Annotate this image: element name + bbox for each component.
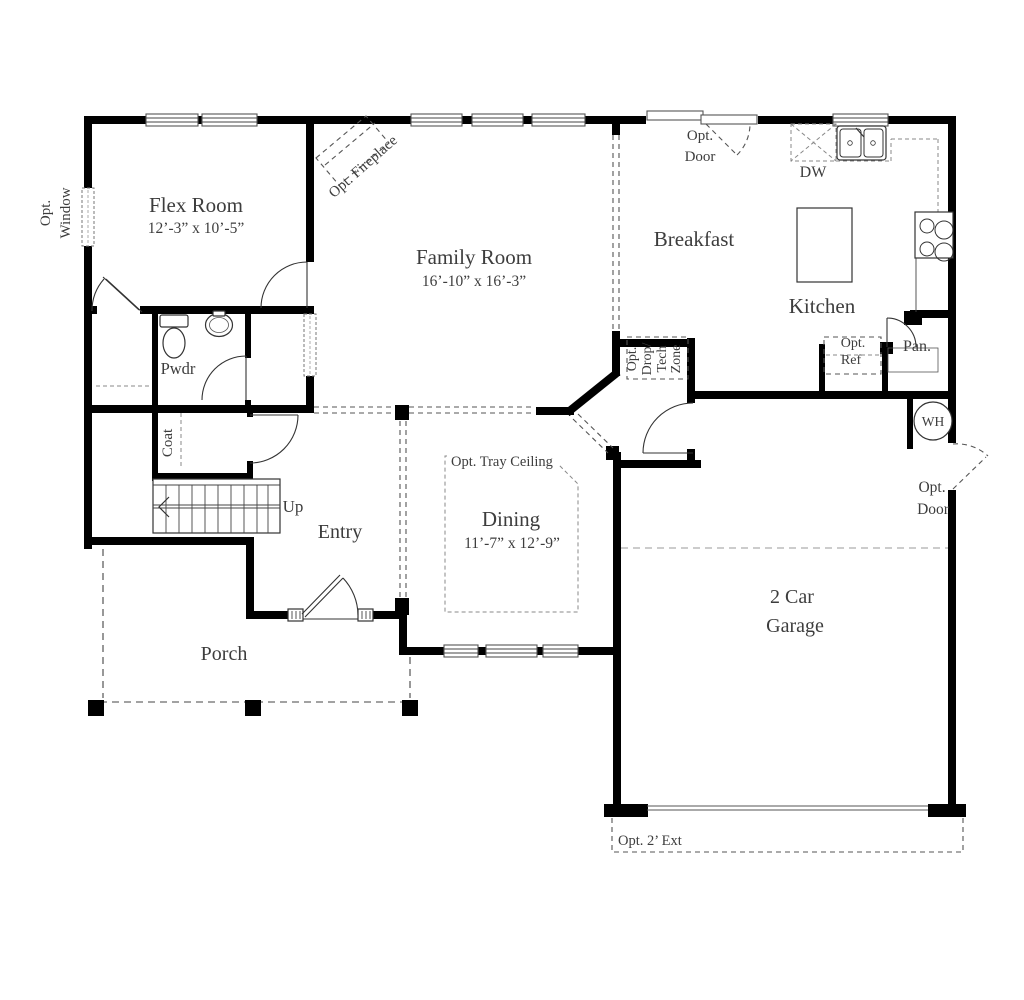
opt-door-top-label-1: Opt. (687, 128, 713, 144)
kitchen-window (833, 114, 888, 126)
dining-dims: 11’-7” x 12’-9” (464, 535, 560, 552)
optional-door-right (953, 444, 988, 489)
pantry-label: Pan. (903, 338, 931, 355)
toilet-fixture (160, 315, 188, 358)
breakfast-label: Breakfast (654, 227, 735, 251)
dishwasher-symbol (791, 124, 836, 161)
entry-label: Entry (318, 521, 362, 543)
garage-door-sill (647, 806, 928, 810)
drop-zone-label-4: Zone (669, 345, 684, 374)
family-room-label: Family Room (416, 245, 532, 269)
powder-room-label: Pwdr (161, 359, 196, 378)
water-heater-label: WH (922, 414, 945, 429)
opt-window-label-2: Window (58, 187, 74, 238)
floor-plan-svg: Flex Room 12’-3” x 10’-5” Opt. Window Op… (0, 0, 1024, 1000)
family-room-opening (314, 407, 531, 413)
garage-label-2: Garage (766, 615, 824, 637)
garage-entry-door (643, 403, 693, 453)
tray-ceiling-label: Opt. Tray Ceiling (451, 454, 553, 470)
opt-fireplace-label: Opt. Fireplace (326, 132, 401, 201)
family-window-2 (472, 114, 523, 126)
entry-dining-opening (400, 421, 406, 597)
cooktop-fixture (915, 212, 953, 261)
family-window-3 (532, 114, 585, 126)
flex-room-dims: 12’-3” x 10’-5” (148, 220, 245, 237)
garage-south-wall-left (604, 804, 648, 817)
coat-closet-label: Coat (160, 428, 176, 457)
opt-ref-label-2: Ref (841, 353, 862, 368)
opt-door-right-label-2: Door (917, 501, 950, 518)
vanity-sink-fixture (206, 311, 233, 337)
drop-zone-label-1: Opt. (625, 347, 640, 372)
front-door (288, 575, 373, 621)
floor-plan-canvas: Flex Room 12’-3” x 10’-5” Opt. Window Op… (0, 0, 1024, 1000)
flex-room-label: Flex Room (149, 193, 243, 217)
opt-extension-label: Opt. 2’ Ext (618, 833, 682, 849)
stairs-up-label: Up (283, 497, 304, 516)
kitchen-island (797, 208, 852, 282)
flex-window-2 (202, 114, 257, 126)
garage-label-1: 2 Car (770, 586, 814, 608)
interior-opening-symbol (304, 314, 316, 376)
dining-window-1 (444, 645, 478, 657)
column-post (395, 598, 409, 615)
porch-label: Porch (201, 643, 248, 665)
garage-south-wall-right (928, 804, 966, 817)
column-post (395, 405, 409, 420)
flex-room-door-east (261, 262, 307, 308)
kitchen-label: Kitchen (789, 294, 856, 318)
flex-room-door-south (92, 277, 142, 312)
fixtures-group (153, 124, 953, 533)
dining-label: Dining (482, 507, 541, 531)
kitchen-sink-fixture (837, 126, 886, 160)
family-breakfast-divider (613, 135, 619, 331)
opt-ref-label-1: Opt. (841, 336, 866, 351)
coat-closet-door (250, 415, 298, 463)
powder-room-door (202, 356, 246, 400)
opt-door-top-label-2: Door (685, 149, 716, 165)
optional-window-symbol (82, 188, 94, 246)
family-room-dims: 16’-10” x 16’-3” (422, 273, 526, 290)
opt-window-label-1: Opt. (38, 200, 54, 226)
staircase (153, 479, 280, 533)
opt-door-right-label-1: Opt. (918, 479, 945, 496)
dishwasher-label: DW (800, 164, 828, 181)
drop-zone-label-3: Tech (655, 345, 670, 372)
dining-window-3 (543, 645, 578, 657)
flex-window-1 (146, 114, 198, 126)
drop-zone-label-2: Drop/ (640, 343, 655, 376)
door-hinge-block (904, 311, 922, 325)
tray-ceiling-box (445, 456, 578, 612)
dining-window-2 (486, 645, 537, 657)
family-window-1 (411, 114, 462, 126)
